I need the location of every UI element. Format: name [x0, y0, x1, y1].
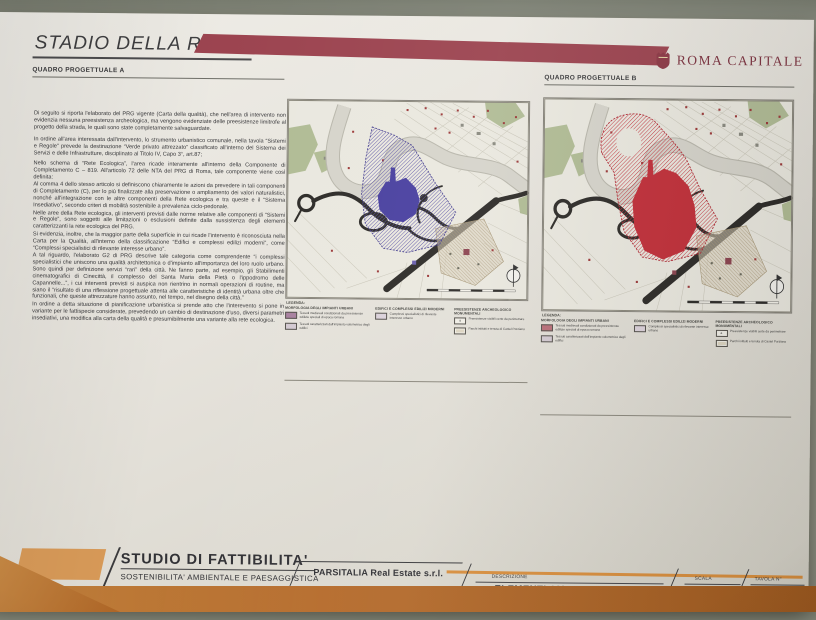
legend-col-header: EDIFICI E COMPLESSI EDILIZI MODERNI [634, 319, 711, 324]
legend-item-label: Complessi specialistici di rilevante int… [648, 325, 710, 333]
desk-surface [0, 586, 816, 612]
legend-col-header: PREESISTENZE ARCHEOLOGICO MONUMENTALI [716, 320, 793, 329]
legend-item-label: Parchi istituiti e tenuta di Castel Porz… [468, 328, 524, 332]
legend-swatch [375, 313, 387, 320]
legend-col-header: MORFOLOGIA DEGLI IMPIANTI URBANI [541, 318, 629, 323]
legend-a: LEGENDA: MORFOLOGIA DEGLI IMPIANTI URBAN… [285, 301, 528, 338]
legend-b: LEGENDA: MORFOLOGIA DEGLI IMPIANTI URBAN… [541, 313, 792, 350]
legend-item-label: Tessuti medievali condizionati da preesi… [300, 312, 371, 320]
paragraph: Nello schema di “Rete Ecologica”, l'area… [33, 160, 285, 183]
legend-item-label: Tessuti caratterizzati dall'impianto vol… [299, 323, 370, 331]
legend-swatch: a [454, 317, 466, 324]
brand-name: ROMA CAPITALE [677, 52, 804, 69]
legend-item-label: Tessuti caratterizzati dall'impianto vol… [555, 335, 629, 343]
company-box: PARSITALIA Real Estate s.r.l. [289, 561, 462, 587]
paragraph: In ordine all'area interessata dall'inte… [34, 137, 286, 160]
map-a [285, 99, 530, 301]
legend-swatch [541, 324, 553, 331]
quadro-a-label: QUADRO PROGETTUALE A [32, 66, 124, 74]
map-b [541, 97, 794, 313]
header-red-band [194, 34, 669, 66]
legend-item-label: Preesistenze visibili certe da perimetra… [469, 318, 525, 322]
company-name: PARSITALIA Real Estate s.r.l. [297, 562, 459, 579]
legend-item-label: Complessi specialistici di rilevante int… [390, 313, 450, 321]
legend-swatch [541, 335, 553, 342]
legend-swatch [634, 325, 646, 332]
legend-item-label: Preesistenze visibili certe da perimetra… [730, 330, 786, 334]
roma-capitale-logo: ROMA CAPITALE [656, 50, 804, 70]
legend-swatch [454, 327, 466, 334]
description-label: DESCRIZIONE [492, 575, 528, 580]
legend-swatch: a [715, 330, 727, 337]
legend-col-header: PREESISTENZE ARCHEOLOGICO MONUMENTALI [454, 307, 528, 316]
intro-text-block: Di seguito si riporta l'elaborato del PR… [32, 110, 286, 325]
project-title: STUDIO DI FATTIBILITA' [121, 551, 315, 571]
paragraph: Di seguito si riporta l'elaborato del PR… [34, 110, 286, 133]
project-subtitle: SOSTENIBILITA' AMBIENTALE E PAESAGGISTIC… [121, 572, 319, 583]
legend-item-label: Tessuti medievali condizionati da preesi… [555, 324, 629, 332]
paragraph: Nelle aree della Rete ecologica, gli int… [33, 210, 285, 233]
legend-col-header: EDIFICI E COMPLESSI EDILIZI MODERNI [375, 307, 449, 312]
quadro-progettuale-a-panel: LEGENDA: MORFOLOGIA DEGLI IMPIANTI URBAN… [284, 99, 530, 383]
quadro-a-rule [32, 76, 284, 79]
legend-col-header: MORFOLOGIA DEGLI IMPIANTI URBANI [285, 306, 370, 311]
legend-swatch [285, 323, 297, 330]
quadro-b-rule [544, 84, 794, 87]
paragraph: Si evidenzia, inoltre, che la maggior pa… [33, 231, 285, 254]
paragraph: In ordine a detta situazione di pianific… [32, 301, 284, 324]
legend-swatch [715, 340, 727, 347]
document-sheet: STADIO DELLA ROMA ROMA CAPITALE QUADRO P… [0, 12, 814, 605]
scale-rule [685, 584, 741, 586]
quadro-progettuale-b-panel: LEGENDA: MORFOLOGIA DEGLI IMPIANTI URBAN… [540, 97, 794, 417]
legend-swatch [285, 312, 297, 319]
sheet-label: TAVOLA N° [755, 577, 782, 582]
roma-capitale-crest-icon [656, 50, 671, 69]
paragraph: Al comma 4 dello stesso articolo si defi… [33, 182, 285, 212]
paragraph: A tal riguardo, l'elaborato G2 di PRG de… [32, 253, 284, 303]
legend-item-label: Parchi istituiti e tenuta di Castel Porz… [730, 340, 786, 344]
quadro-b-label: QUADRO PROGETTUALE B [544, 74, 636, 82]
scale-label: SCALA [695, 577, 712, 582]
